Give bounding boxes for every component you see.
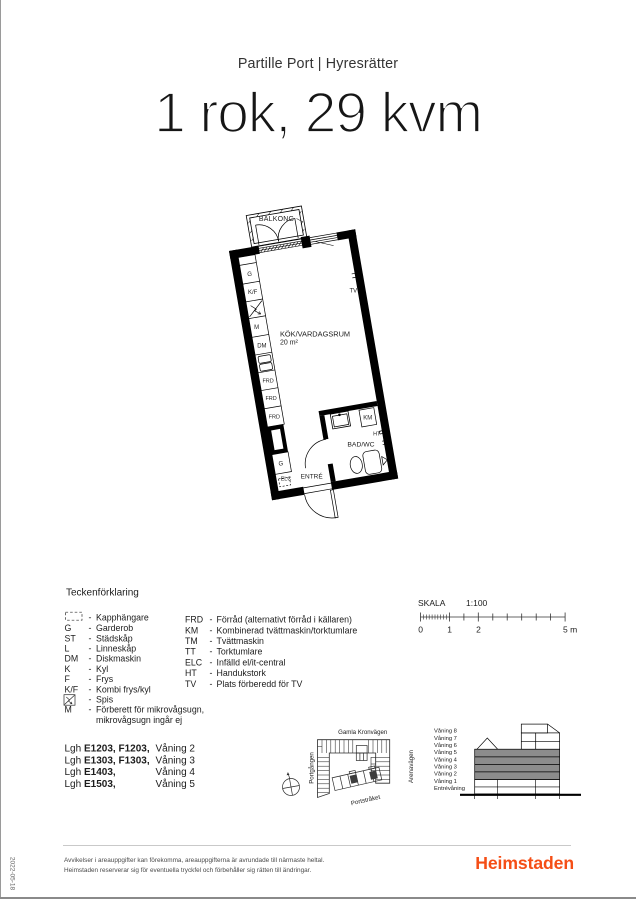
svg-text:Våning 4: Våning 4 — [156, 766, 196, 778]
svg-text:5 m: 5 m — [563, 625, 577, 635]
svg-text:TT: TT — [185, 647, 196, 657]
svg-text:Garderob: Garderob — [96, 623, 133, 633]
svg-text:F: F — [65, 674, 71, 684]
svg-text:Torktumlare: Torktumlare — [217, 647, 263, 657]
svg-text:-: - — [89, 684, 92, 694]
svg-text:Spis: Spis — [96, 695, 114, 705]
svg-text:Förråd (alternativt förråd i k: Förråd (alternativt förråd i källaren) — [217, 615, 352, 625]
svg-text:Frys: Frys — [96, 674, 114, 684]
svg-text:HT: HT — [185, 668, 197, 678]
svg-text:G: G — [247, 272, 252, 278]
svg-text:Portgången: Portgången — [309, 752, 316, 784]
svg-text:FRD: FRD — [185, 615, 203, 625]
svg-text:-: - — [210, 625, 213, 635]
svg-text:Våning 5: Våning 5 — [434, 749, 457, 756]
svg-text:-: - — [89, 654, 92, 664]
svg-text:Arenavägen: Arenavägen — [408, 750, 415, 783]
svg-text:Förberett för mikrovågsugn,: Förberett för mikrovågsugn, — [96, 705, 204, 715]
svg-text:SKALA: SKALA — [418, 598, 446, 608]
svg-text:ELC: ELC — [281, 476, 292, 482]
svg-text:G: G — [65, 623, 72, 633]
svg-text:ENTRÉ: ENTRÉ — [301, 472, 324, 481]
svg-text:TV: TV — [185, 679, 196, 689]
svg-text:-: - — [89, 644, 92, 654]
svg-text:-: - — [89, 633, 92, 643]
svg-text:K: K — [65, 664, 71, 674]
svg-text:DM: DM — [257, 343, 266, 349]
svg-text:Våning 3: Våning 3 — [434, 764, 457, 771]
svg-text:Lgh: Lgh — [65, 767, 82, 778]
svg-text:-: - — [210, 657, 213, 667]
svg-text:KM: KM — [363, 416, 372, 422]
svg-text:1:100: 1:100 — [466, 598, 488, 608]
svg-text:BALKONG: BALKONG — [259, 216, 294, 223]
svg-text:ST: ST — [65, 633, 77, 643]
svg-text:Tvättmaskin: Tvättmaskin — [217, 636, 265, 646]
svg-text:Diskmaskin: Diskmaskin — [96, 654, 141, 664]
svg-text:E1403,: E1403, — [84, 767, 116, 778]
svg-text:Våning 2: Våning 2 — [156, 743, 196, 755]
svg-text:-: - — [89, 695, 92, 705]
svg-text:HT: HT — [373, 432, 381, 438]
svg-text:Städskåp: Städskåp — [96, 633, 133, 643]
svg-text:KÖK/VARDAGSRUM: KÖK/VARDAGSRUM — [280, 329, 350, 338]
svg-text:Kapphängare: Kapphängare — [96, 613, 149, 623]
svg-text:K/F: K/F — [65, 684, 79, 694]
svg-text:2: 2 — [476, 625, 481, 635]
svg-text:E1303, F1303,: E1303, F1303, — [84, 755, 150, 766]
svg-text:BAD/WC: BAD/WC — [347, 441, 374, 448]
svg-text:K/F: K/F — [248, 290, 258, 296]
svg-text:Lgh: Lgh — [65, 755, 82, 766]
svg-text:Kyl: Kyl — [96, 664, 108, 674]
svg-text:FRD: FRD — [265, 396, 276, 402]
svg-text:Kombi frys/kyl: Kombi frys/kyl — [96, 684, 151, 694]
svg-text:E1503,: E1503, — [84, 779, 116, 790]
svg-text:FRD: FRD — [269, 414, 280, 420]
svg-text:G: G — [278, 461, 283, 467]
svg-text:-: - — [89, 623, 92, 633]
svg-text:Plats förberedd för TV: Plats förberedd för TV — [217, 679, 303, 689]
svg-text:-: - — [210, 615, 213, 625]
svg-text:mikrovågsugn ingår ej: mikrovågsugn ingår ej — [96, 715, 182, 725]
svg-text:Våning 2: Våning 2 — [434, 771, 457, 778]
svg-text:-: - — [89, 674, 92, 684]
svg-text:-: - — [210, 636, 213, 646]
svg-text:TM: TM — [185, 636, 198, 646]
svg-text:Teckenförklaring: Teckenförklaring — [66, 588, 139, 599]
svg-text:Våning 3: Våning 3 — [156, 754, 196, 766]
svg-text:Kombinerad tvättmaskin/torktum: Kombinerad tvättmaskin/torktumlare — [217, 625, 358, 635]
svg-text:0: 0 — [418, 625, 423, 635]
svg-text:-: - — [210, 647, 213, 657]
svg-text:-: - — [89, 664, 92, 674]
svg-text:M: M — [254, 325, 259, 331]
svg-text:KM: KM — [185, 625, 198, 635]
svg-text:Våning 7: Våning 7 — [434, 735, 457, 742]
svg-text:Portstråket: Portstråket — [350, 794, 381, 808]
svg-text:Lgh: Lgh — [65, 779, 82, 790]
svg-text:Handukstork: Handukstork — [217, 668, 267, 678]
svg-text:Våning 1: Våning 1 — [434, 778, 457, 785]
svg-text:Entrévåning: Entrévåning — [434, 785, 465, 792]
svg-text:Våning 8: Våning 8 — [434, 728, 457, 735]
svg-text:DM: DM — [65, 654, 79, 664]
svg-text:L: L — [65, 644, 70, 654]
svg-text:-: - — [210, 668, 213, 678]
svg-text:1: 1 — [447, 625, 452, 635]
svg-text:-: - — [89, 705, 92, 715]
svg-text:Våning 5: Våning 5 — [156, 778, 196, 790]
svg-text:E1203, F1203,: E1203, F1203, — [84, 744, 150, 755]
svg-text:ELC: ELC — [185, 657, 203, 667]
svg-text:TV: TV — [349, 289, 357, 295]
svg-text:Gamla Kronvägen: Gamla Kronvägen — [338, 729, 387, 736]
svg-text:Lgh: Lgh — [65, 744, 82, 755]
svg-text:Våning 6: Våning 6 — [434, 742, 457, 749]
svg-text:Linneskåp: Linneskåp — [96, 644, 136, 654]
svg-text:Infälld el/it-central: Infälld el/it-central — [217, 657, 286, 667]
svg-text:FRD: FRD — [262, 378, 273, 384]
svg-text:Våning 4: Våning 4 — [434, 756, 458, 763]
svg-text:M: M — [65, 705, 72, 715]
svg-text:-: - — [89, 613, 92, 623]
svg-text:20 m²: 20 m² — [280, 339, 299, 346]
svg-text:-: - — [210, 679, 213, 689]
